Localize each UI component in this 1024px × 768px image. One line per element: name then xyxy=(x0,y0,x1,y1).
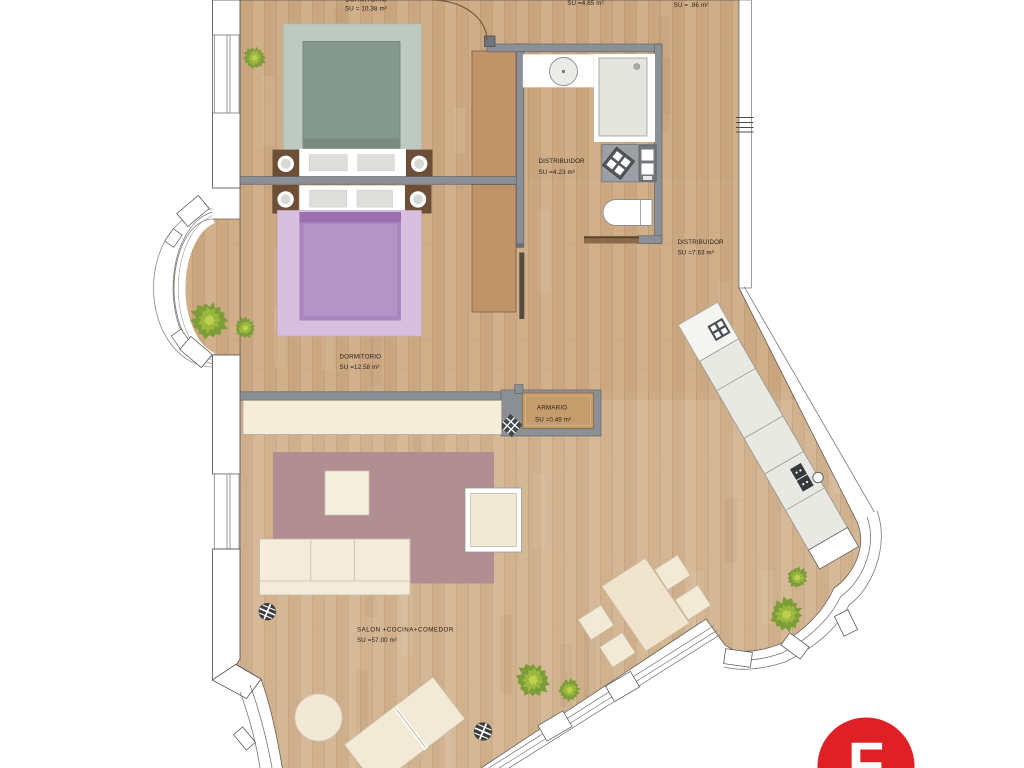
svg-text:SU =57.00 m²: SU =57.00 m² xyxy=(357,637,397,644)
svg-text:SU =0.49 m²: SU =0.49 m² xyxy=(535,417,571,424)
svg-text:DISTRIBUIDOR: DISTRIBUIDOR xyxy=(539,158,586,165)
svg-text:DORMITORIO: DORMITORIO xyxy=(345,0,387,4)
svg-text:SU =4.23 m²: SU =4.23 m² xyxy=(539,169,576,176)
svg-text:SU = 10.38 m²: SU = 10.38 m² xyxy=(345,6,387,13)
svg-text:SALON +COCINA+COMEDOR: SALON +COCINA+COMEDOR xyxy=(357,626,454,633)
svg-text:F: F xyxy=(848,730,885,768)
svg-text:SU =4,65 m²: SU =4,65 m² xyxy=(567,0,604,7)
svg-text:SU =12.58 m²: SU =12.58 m² xyxy=(340,364,380,371)
svg-text:DORMITORIO: DORMITORIO xyxy=(340,354,382,361)
svg-text:SU =7.63 m²: SU =7.63 m² xyxy=(678,250,715,257)
svg-text:ARMARIO: ARMARIO xyxy=(537,405,567,412)
svg-text:SU = .86 m²: SU = .86 m² xyxy=(674,2,709,9)
svg-text:DISTRIBUIDOR: DISTRIBUIDOR xyxy=(678,239,725,246)
